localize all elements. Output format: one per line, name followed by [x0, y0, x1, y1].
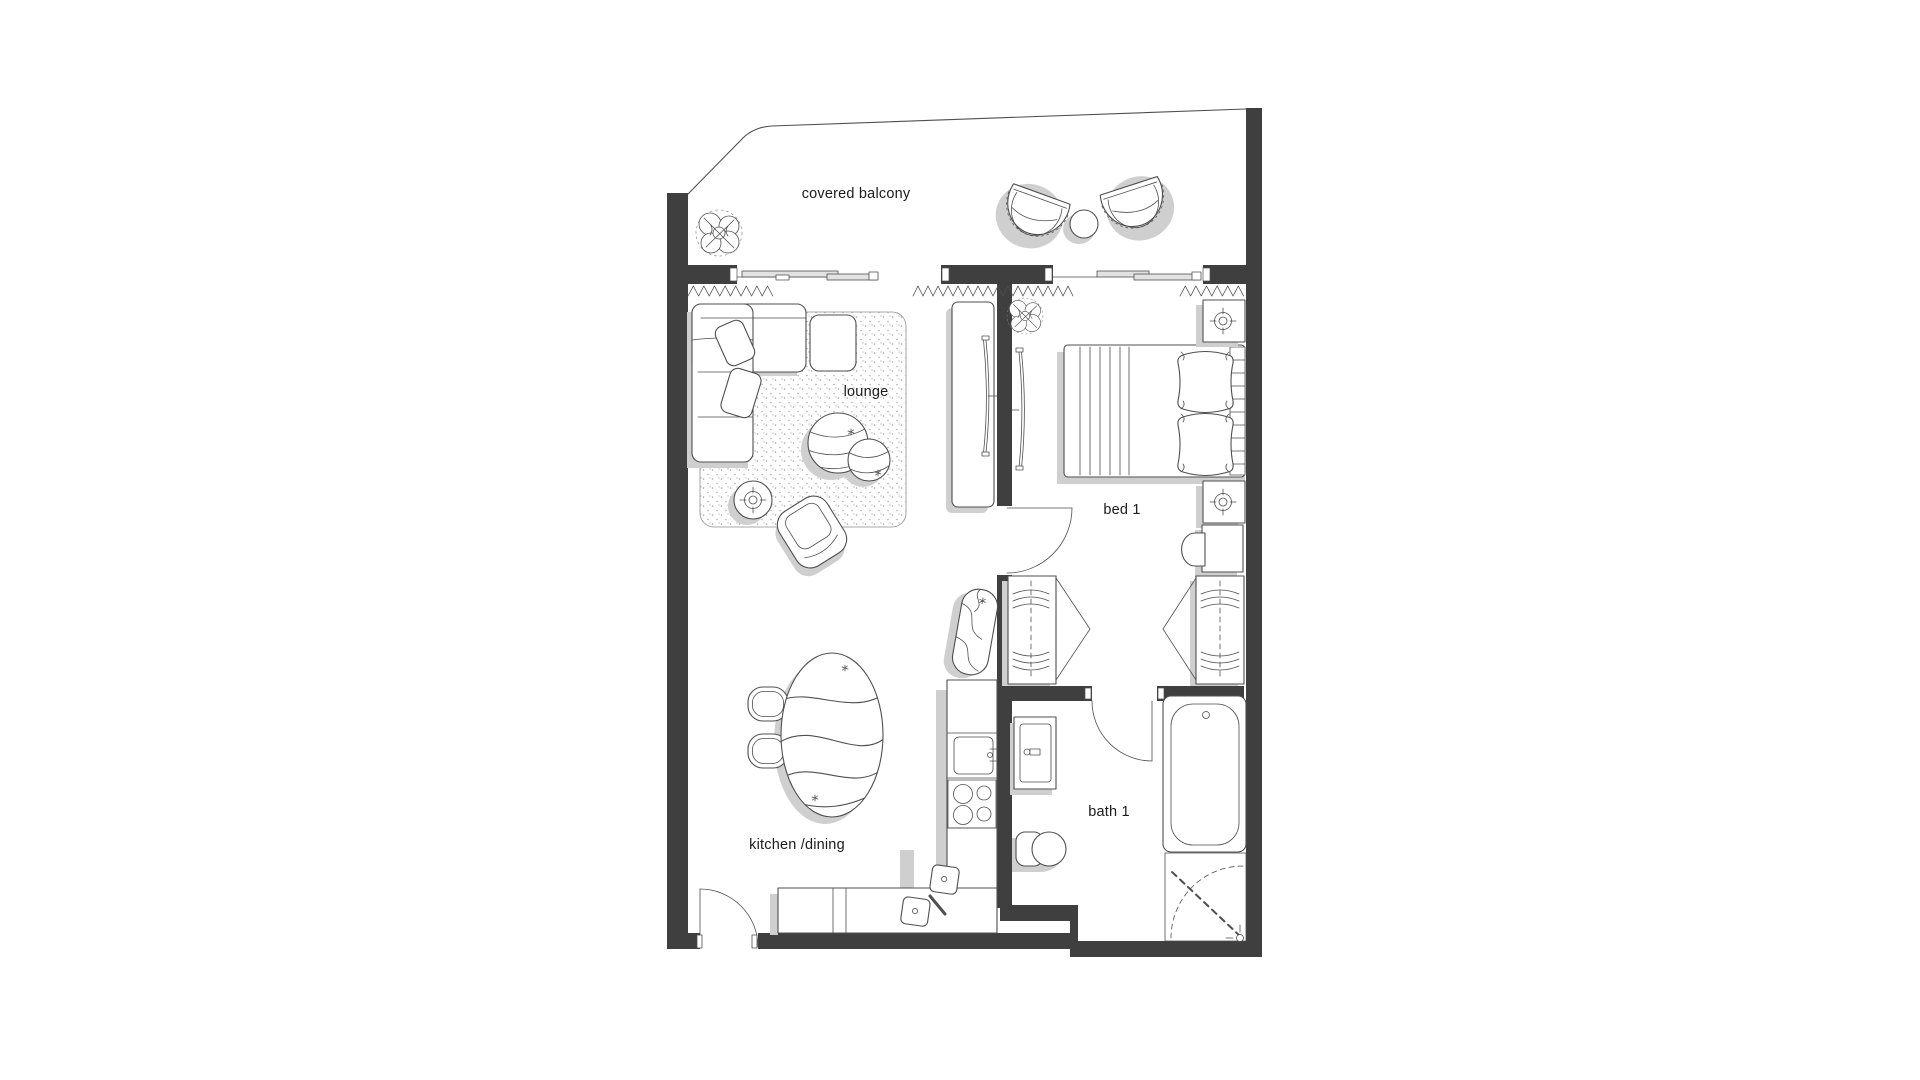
wall-east: [1246, 108, 1262, 957]
fabric-bench: [941, 585, 1000, 682]
glazing-tick: [730, 268, 737, 281]
shower: [1165, 853, 1246, 942]
sliding-panel: [742, 271, 838, 277]
dining-set: [748, 653, 885, 824]
room-label-bed-1: bed 1: [1103, 502, 1140, 518]
kitchen-counter: [936, 680, 997, 898]
desk: [1182, 525, 1243, 577]
tap-icon: [1030, 749, 1040, 755]
wall-west: [667, 193, 688, 949]
shower-fold-door: [1172, 872, 1240, 936]
room-label-covered-balcony: covered balcony: [802, 186, 911, 202]
balcony-side-table: [1070, 210, 1098, 238]
door-jamb-tick: [752, 935, 757, 948]
toilet: [1012, 832, 1066, 872]
glazing-tick: [942, 268, 949, 281]
panel-handle: [869, 272, 878, 280]
floor-plan-svg: covered balcony: [0, 0, 1920, 1080]
bathtub: [1163, 696, 1246, 852]
balcony-outline: [688, 109, 1246, 194]
stool: [1182, 533, 1205, 566]
bed-pillow: [1178, 414, 1233, 476]
glazing-tick: [1045, 268, 1052, 281]
bedside-table: [1196, 300, 1245, 347]
panel-handle: [776, 275, 789, 280]
balcony-chair-right: [1096, 167, 1182, 249]
room-label-lounge: lounge: [844, 384, 889, 400]
tap-icon: [1024, 749, 1030, 755]
shower-head-icon: [1237, 935, 1244, 942]
flyscreen-zigzag: [913, 286, 1073, 296]
door-jamb-tick: [1085, 688, 1091, 699]
plant-icon: [696, 210, 742, 256]
wall-bottom-left: [667, 933, 700, 949]
kitchen-dining-room: kitchen /dining: [697, 585, 1000, 948]
bed-pillow: [1178, 352, 1233, 413]
floor-plan-page: covered balcony: [0, 0, 1920, 1080]
prep-sink: [929, 864, 959, 894]
wall-window-mid: [941, 265, 1053, 284]
lounge-room: lounge: [687, 302, 997, 582]
glazing-tick: [1203, 268, 1210, 281]
balcony-chair-left: [987, 174, 1075, 258]
bed: [1057, 345, 1245, 484]
panel-handle: [1192, 272, 1201, 280]
dining-table: [781, 653, 883, 817]
robe-left: [1002, 576, 1090, 686]
tv-cabinet: [946, 302, 994, 513]
entry-door: [697, 889, 758, 948]
prep-sink: [900, 896, 930, 926]
robe-right: [1163, 576, 1244, 686]
door-jamb-tick: [1158, 688, 1164, 699]
bedside-table: [1196, 481, 1245, 528]
wall-lounge-bed: [997, 283, 1012, 506]
bed-door: [1007, 508, 1072, 573]
room-label-kitchen-dining: kitchen /dining: [749, 837, 845, 853]
plant-icon: [1007, 298, 1043, 334]
room-label-bath-1: bath 1: [1088, 804, 1130, 820]
wall-connector: [1070, 905, 1078, 957]
wall-bath-ledge: [1000, 905, 1070, 921]
wall-bottom-kitchen: [758, 933, 1078, 949]
balcony: covered balcony: [688, 109, 1246, 259]
door-jamb-tick: [697, 935, 702, 948]
robe-door-fold: [1056, 578, 1090, 680]
bed-1-room: bed 1: [1007, 298, 1245, 577]
sliding-panel: [1134, 274, 1200, 280]
robes: [1002, 576, 1244, 686]
bath-1-room: bath 1: [1010, 696, 1246, 942]
flyscreen-zigzag: [1180, 286, 1244, 296]
sofa-ottoman: [810, 315, 856, 371]
wall-bath-top-left: [1012, 686, 1092, 701]
vanity: [1010, 717, 1056, 795]
flyscreen-zigzag: [688, 286, 773, 296]
wall-bottom-right: [1078, 941, 1262, 957]
tv-bed: [1012, 348, 1025, 470]
bath-door: [1092, 701, 1152, 761]
